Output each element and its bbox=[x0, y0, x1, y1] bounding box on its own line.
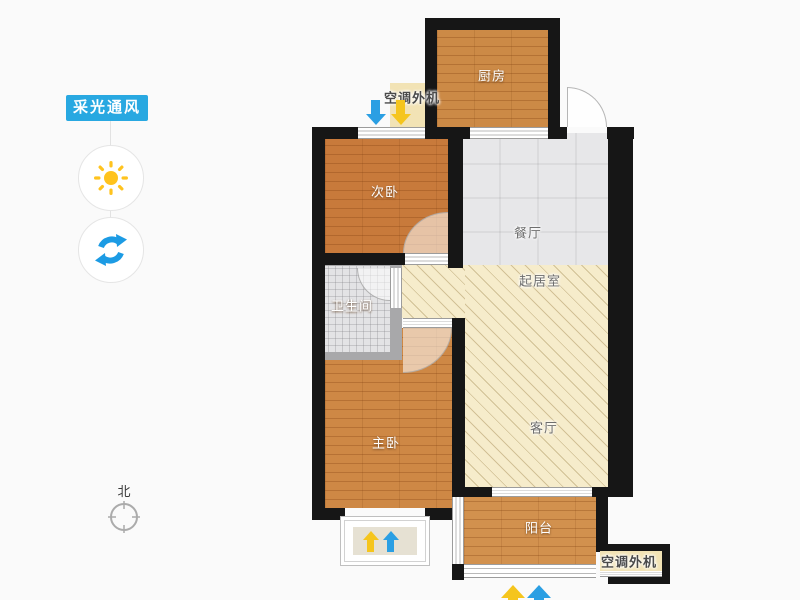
wall-segment bbox=[608, 576, 670, 584]
room-label-master-bedroom: 主卧 bbox=[372, 433, 400, 452]
entry-door-arc bbox=[567, 87, 607, 127]
wall-segment bbox=[425, 127, 470, 139]
ac-unit-top-label: 空调外机 bbox=[384, 88, 440, 107]
wall-segment bbox=[592, 487, 633, 497]
light-arrow-yellow-icon bbox=[501, 585, 525, 598]
wall-segment bbox=[425, 18, 560, 30]
wall-segment bbox=[596, 497, 608, 544]
light-arrow-blue-icon bbox=[387, 540, 394, 552]
balcony-front-window bbox=[464, 564, 596, 578]
wall-segment bbox=[662, 552, 670, 578]
ac-platform-window bbox=[600, 570, 662, 577]
wall-segment bbox=[452, 318, 465, 487]
room-label-balcony: 阳台 bbox=[525, 518, 553, 537]
balcony-side-window bbox=[452, 497, 464, 564]
ac-unit-bottom-label: 空调外机 bbox=[601, 552, 657, 571]
sunlight-toggle-button[interactable] bbox=[78, 145, 144, 211]
light-arrow-yellow-icon bbox=[363, 531, 379, 540]
room-label-second-bedroom: 次卧 bbox=[371, 182, 399, 201]
bathroom-door-opening bbox=[390, 268, 402, 308]
room-label-bathroom: 卫生间 bbox=[331, 296, 373, 315]
room-label-dining-room: 餐厅 bbox=[514, 223, 542, 242]
wall-segment bbox=[548, 127, 567, 139]
dining-room-floor bbox=[463, 133, 608, 265]
light-arrow-yellow-icon bbox=[367, 540, 374, 552]
light-arrow-blue-icon bbox=[527, 585, 551, 598]
second-bedroom-window bbox=[358, 127, 425, 139]
wall-segment bbox=[448, 139, 463, 268]
living-room-floor bbox=[465, 265, 608, 487]
wall-segment bbox=[312, 139, 325, 508]
airflow-arrow-yellow-icon bbox=[396, 100, 405, 115]
wall-segment bbox=[608, 139, 633, 487]
lighting-ventilation-button[interactable]: 采光通风 bbox=[66, 95, 148, 121]
room-label-living-room: 客厅 bbox=[530, 418, 558, 437]
light-arrow-blue-icon bbox=[383, 531, 399, 540]
wall-segment bbox=[452, 564, 464, 580]
master-bedroom-door-opening bbox=[403, 318, 452, 328]
kitchen-window bbox=[470, 127, 548, 139]
room-label-living-area: 起居室 bbox=[519, 271, 561, 290]
wall-segment bbox=[425, 30, 437, 127]
airflow-arrow-yellow-icon bbox=[391, 114, 411, 125]
wall-segment bbox=[312, 127, 358, 139]
wall-segment bbox=[548, 30, 560, 127]
wall-segment bbox=[452, 487, 492, 497]
wall-segment bbox=[312, 253, 405, 265]
wall-segment bbox=[607, 127, 634, 139]
airflow-arrow-blue-icon bbox=[371, 100, 380, 115]
compass-icon bbox=[104, 497, 144, 537]
sun-icon bbox=[93, 160, 129, 196]
room-label-kitchen: 厨房 bbox=[478, 66, 506, 85]
rotate-icon bbox=[94, 233, 128, 267]
rotate-plan-button[interactable] bbox=[78, 217, 144, 283]
floorplan-viewer: 采光通风 bbox=[0, 0, 800, 600]
balcony-door-window bbox=[492, 487, 592, 497]
airflow-arrow-blue-icon bbox=[366, 114, 386, 125]
second-bedroom-door-opening bbox=[405, 253, 448, 265]
